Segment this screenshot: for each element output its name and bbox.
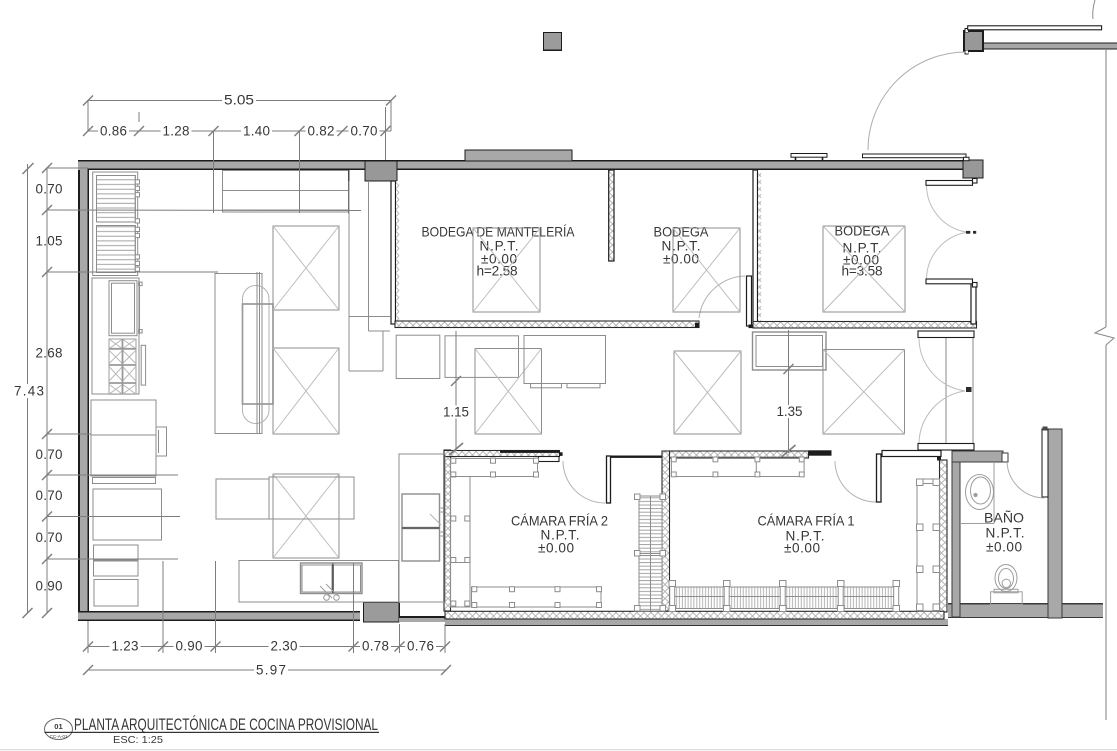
svg-text:CC-A-01: CC-A-01 — [50, 734, 68, 739]
svg-text:0.78: 0.78 — [362, 639, 389, 654]
svg-text:2.68: 2.68 — [36, 346, 63, 361]
svg-text:BODEGA: BODEGA — [654, 225, 710, 240]
svg-text:1.28: 1.28 — [163, 124, 190, 139]
svg-text:±0.00: ±0.00 — [538, 541, 574, 556]
svg-text:01: 01 — [54, 722, 63, 731]
svg-text:0.86: 0.86 — [100, 124, 127, 139]
svg-text:5.05: 5.05 — [224, 93, 254, 108]
svg-text:±0.00: ±0.00 — [784, 541, 820, 556]
svg-text:1.35: 1.35 — [777, 404, 803, 419]
svg-text:PLANTA ARQUITECTÓNICA DE COCIN: PLANTA ARQUITECTÓNICA DE COCINA PROVISIO… — [74, 715, 378, 734]
svg-text:BODEGA DE MANTELERÍA: BODEGA DE MANTELERÍA — [422, 225, 576, 240]
svg-text:1.23: 1.23 — [112, 639, 139, 654]
svg-text:ESC: 1:25: ESC: 1:25 — [113, 734, 163, 746]
svg-text:CÁMARA FRÍA 1: CÁMARA FRÍA 1 — [758, 514, 855, 529]
svg-text:0.70: 0.70 — [36, 182, 63, 197]
svg-text:0.82: 0.82 — [308, 124, 335, 139]
svg-text:0.70: 0.70 — [351, 124, 378, 139]
svg-text:1.05: 1.05 — [36, 234, 63, 249]
svg-text:±0.00: ±0.00 — [986, 540, 1022, 555]
svg-text:1.15: 1.15 — [443, 405, 469, 420]
svg-text:0.76: 0.76 — [407, 639, 434, 654]
svg-text:7.43: 7.43 — [14, 384, 44, 399]
svg-text:0.70: 0.70 — [36, 447, 63, 462]
svg-text:5.97: 5.97 — [256, 663, 286, 678]
svg-text:0.70: 0.70 — [36, 530, 63, 545]
svg-text:0.90: 0.90 — [36, 579, 63, 594]
svg-text:2.30: 2.30 — [271, 639, 298, 654]
svg-text:1.40: 1.40 — [243, 124, 270, 139]
svg-text:0.70: 0.70 — [36, 488, 63, 503]
svg-text:N.P.T.: N.P.T. — [986, 526, 1025, 541]
svg-text:0.90: 0.90 — [176, 639, 203, 654]
svg-text:CÁMARA FRÍA 2: CÁMARA FRÍA 2 — [511, 514, 608, 529]
